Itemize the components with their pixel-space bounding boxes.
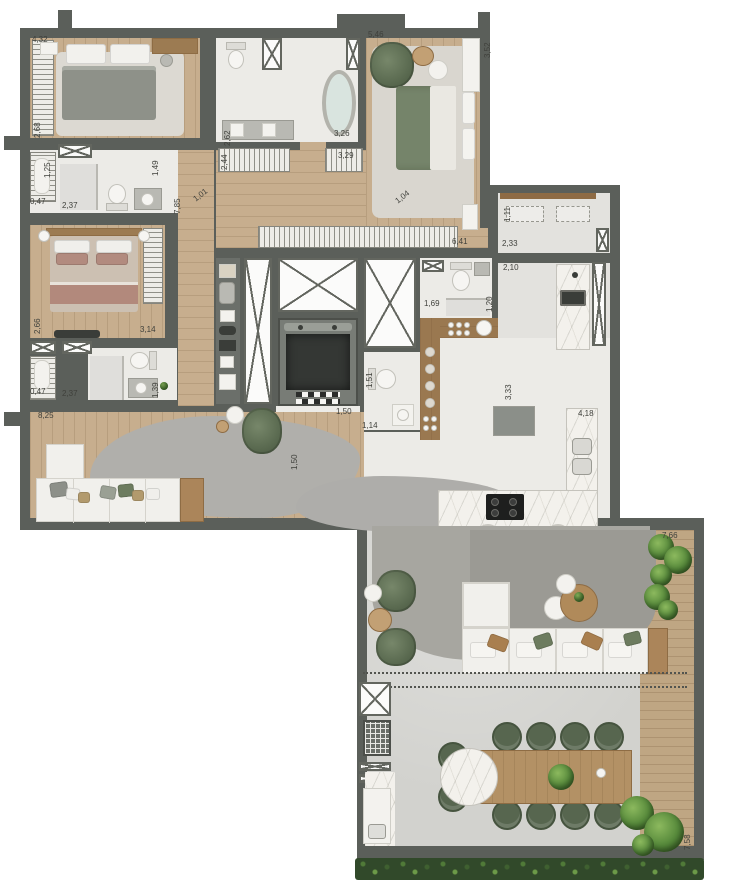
dimension-label: 3,33 <box>505 384 513 400</box>
dimension-label: 1,69 <box>424 300 440 308</box>
dimension-label: 3,14 <box>140 326 156 334</box>
dimension-label: 2,62 <box>224 130 232 146</box>
floor-plan: 4,322,681,250,472,371,492,623,262,443,29… <box>0 0 734 883</box>
dimension-label: 7,66 <box>662 532 678 540</box>
dimension-label: 0,47 <box>30 198 46 206</box>
dimension-label: 1,11 <box>504 207 512 222</box>
dimension-label: 2,33 <box>502 240 518 248</box>
dimension-label: 7,85 <box>174 198 182 214</box>
dimension-label: 1,50 <box>291 454 299 470</box>
dimension-label: 1,14 <box>362 422 378 430</box>
dimension-label: 3,26 <box>334 130 350 138</box>
dimension-label: 1,39 <box>152 382 160 398</box>
dimension-label: 2,37 <box>62 202 78 210</box>
dimension-label: 7,58 <box>684 834 692 850</box>
dimension-label: 0,47 <box>30 388 46 396</box>
dimension-label: 5,46 <box>368 31 384 39</box>
dimension-label: 2,68 <box>34 122 42 138</box>
dimension-label: 4,18 <box>578 410 594 418</box>
dimension-label: 2,10 <box>503 264 519 272</box>
dimension-label: 1,49 <box>152 160 160 176</box>
dimension-labels-layer: 4,322,681,250,472,371,492,623,262,443,29… <box>0 0 734 883</box>
dimension-label: 3,29 <box>338 152 354 160</box>
dimension-label: 1,50 <box>336 408 352 416</box>
dimension-label: 1,20 <box>486 296 494 312</box>
dimension-label: 1,01 <box>192 187 209 203</box>
dimension-label: 6,41 <box>452 238 468 246</box>
dimension-label: 8,25 <box>38 412 54 420</box>
dimension-label: 2,37 <box>62 390 78 398</box>
dimension-label: 4,32 <box>32 36 48 44</box>
dimension-label: 2,66 <box>34 318 42 334</box>
dimension-label: 1,51 <box>366 372 374 388</box>
dimension-label: 1,25 <box>44 162 52 178</box>
dimension-label: 2,44 <box>221 154 229 170</box>
dimension-label: 3,52 <box>484 42 492 58</box>
dimension-label: 1,04 <box>394 189 411 205</box>
